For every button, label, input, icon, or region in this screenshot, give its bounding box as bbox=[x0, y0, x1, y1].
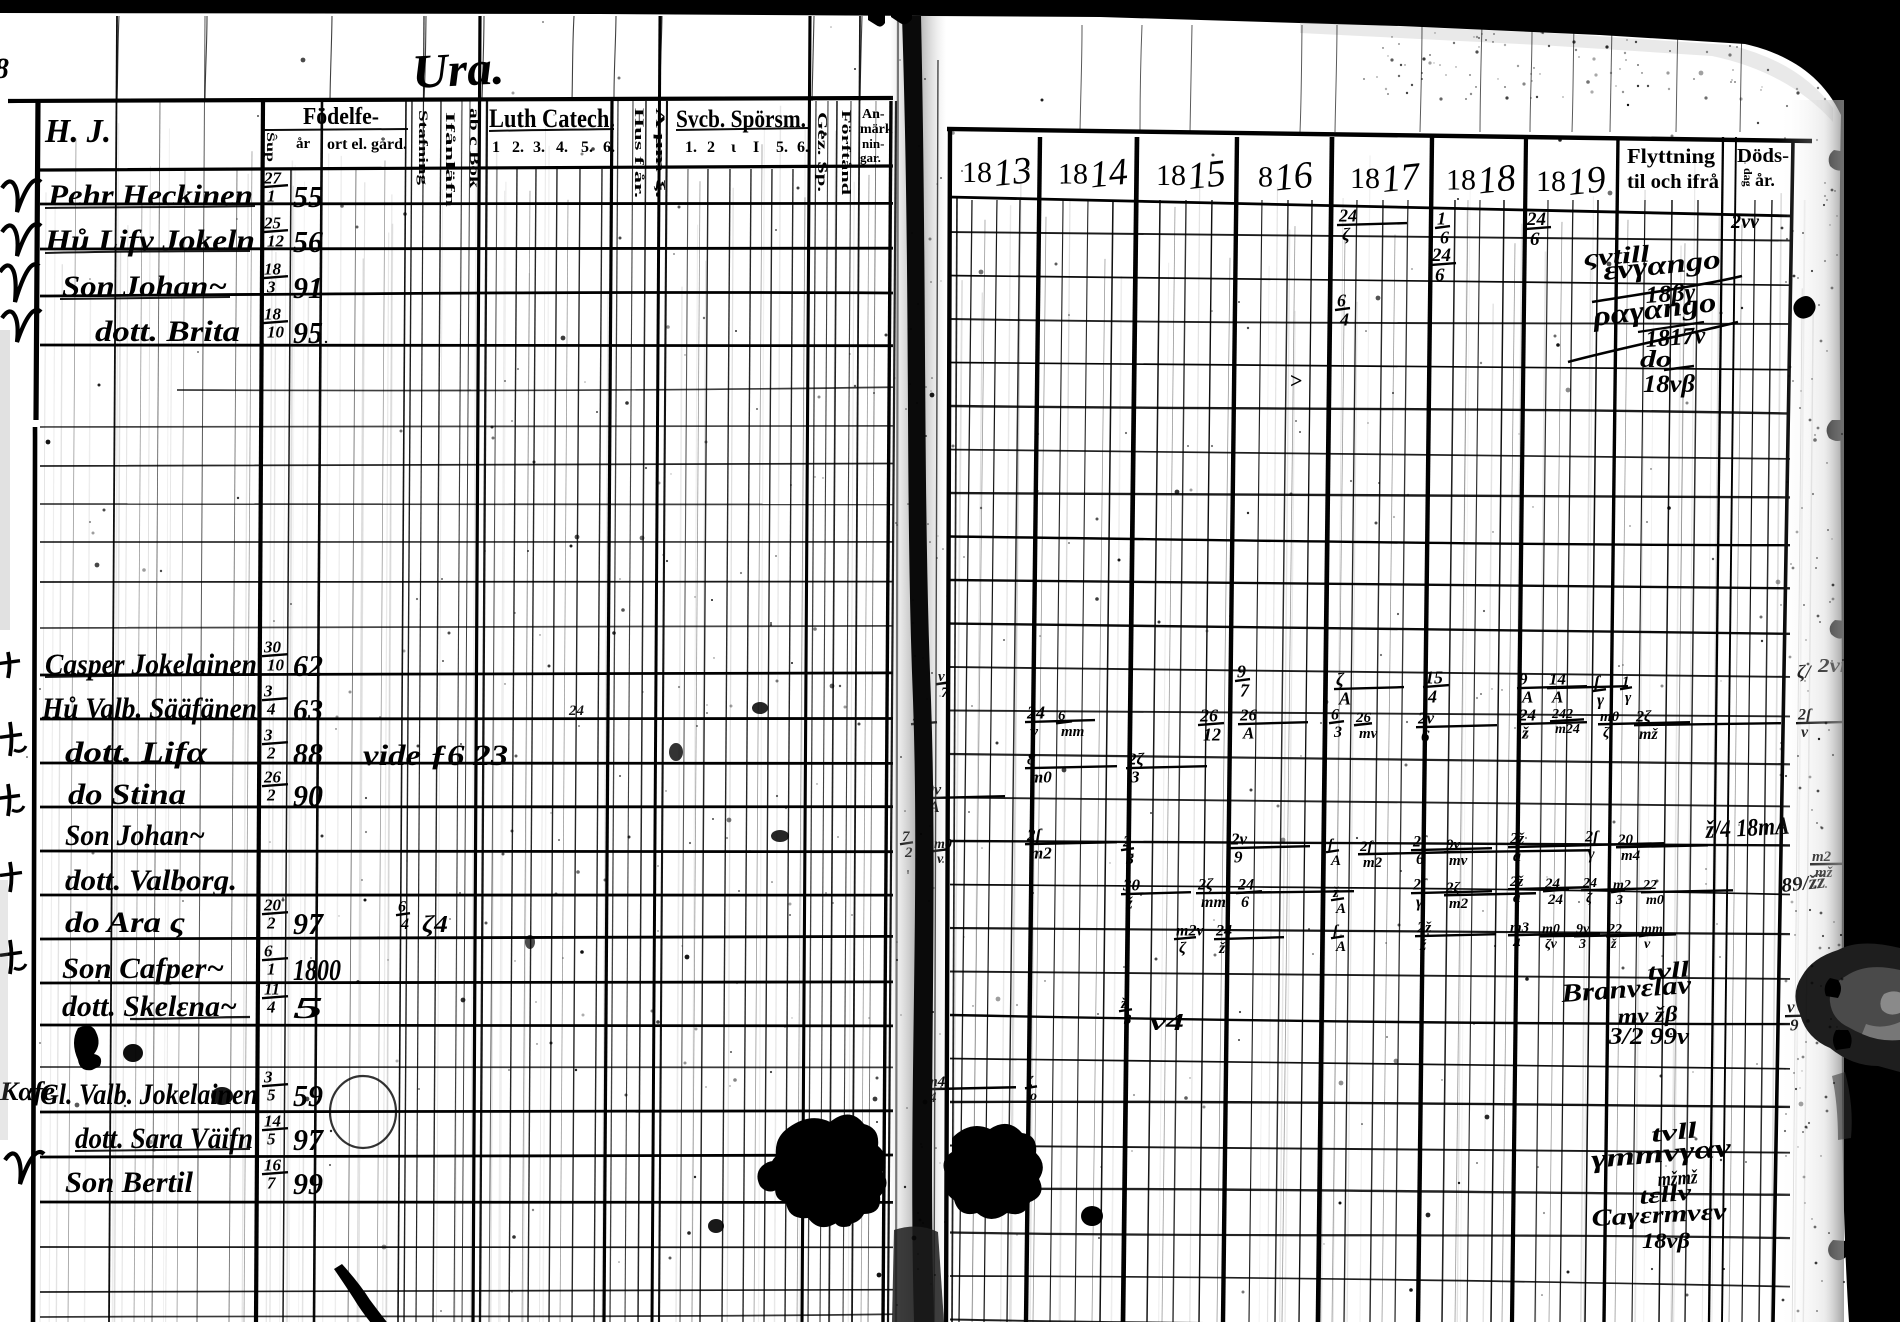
svg-text:ž: ž bbox=[1125, 894, 1133, 913]
svg-text:3: 3 bbox=[1123, 1012, 1132, 1028]
svg-text:8: 8 bbox=[1258, 161, 1273, 194]
svg-text:ζ4: ζ4 bbox=[422, 912, 448, 938]
svg-text:т0: т0 bbox=[1646, 893, 1664, 908]
svg-text:18νβ: 18νβ bbox=[1643, 371, 1695, 398]
svg-text:4: 4 bbox=[1339, 309, 1349, 329]
svg-text:4: 4 bbox=[400, 916, 409, 933]
svg-text:4.: 4. bbox=[556, 139, 568, 156]
svg-text:18: 18 bbox=[1350, 162, 1380, 195]
svg-text:59: 59 bbox=[293, 1078, 323, 1113]
svg-text:4: 4 bbox=[1427, 686, 1437, 706]
svg-text:2ζ: 2ζ bbox=[1445, 880, 1462, 896]
svg-text:til och ifrå: til och ifrå bbox=[1627, 171, 1719, 193]
svg-text:dag: dag bbox=[1741, 168, 1755, 187]
svg-text:ζ: ζ bbox=[1179, 940, 1187, 957]
svg-text:ζ: ζ bbox=[1342, 224, 1351, 244]
svg-text:15: 15 bbox=[1425, 667, 1443, 687]
svg-text:16: 16 bbox=[1273, 154, 1315, 200]
svg-text:Ι: Ι bbox=[753, 139, 759, 156]
svg-text:Son Bertil: Son Bertil bbox=[65, 1166, 194, 1199]
svg-text:т24: т24 bbox=[1555, 722, 1580, 737]
svg-text:18: 18 bbox=[1536, 165, 1566, 198]
svg-text:8: 8 bbox=[0, 52, 9, 85]
svg-text:тν: тν bbox=[1449, 853, 1468, 869]
svg-text:6.: 6. bbox=[797, 139, 809, 156]
svg-text:56: 56 bbox=[293, 224, 323, 259]
svg-text:2ſ: 2ſ bbox=[1359, 839, 1375, 855]
svg-text:62: 62 bbox=[293, 648, 323, 683]
svg-text:2ζ: 2ζ bbox=[1197, 877, 1214, 894]
svg-text:Α μm ξ.: Α μm ξ. bbox=[653, 108, 668, 198]
svg-text:24: 24 bbox=[568, 703, 585, 719]
svg-text:Α: Α bbox=[1521, 688, 1533, 707]
svg-text:Son Johan~: Son Johan~ bbox=[65, 819, 205, 852]
svg-text:dott. Valborg.: dott. Valborg. bbox=[65, 864, 237, 897]
svg-text:år: år bbox=[296, 136, 311, 152]
svg-text:55: 55 bbox=[293, 179, 323, 214]
svg-text:22: 22 bbox=[1607, 922, 1622, 937]
svg-text:2ζ: 2ζ bbox=[1127, 749, 1145, 768]
svg-text:т2: т2 bbox=[1449, 896, 1469, 912]
svg-text:2ſ: 2ſ bbox=[1412, 834, 1428, 851]
svg-text:13: 13 bbox=[992, 149, 1034, 195]
svg-text:2: 2 bbox=[266, 914, 276, 933]
svg-text:97: 97 bbox=[293, 1122, 324, 1157]
svg-text:18: 18 bbox=[1446, 164, 1476, 197]
svg-text:88: 88 bbox=[293, 736, 323, 771]
svg-text:6: 6 bbox=[1416, 851, 1424, 868]
svg-text:ι: ι bbox=[731, 139, 736, 156]
svg-text:т3: т3 bbox=[1510, 920, 1530, 936]
svg-text:gar.: gar. bbox=[860, 150, 881, 165]
svg-text:14: 14 bbox=[1088, 151, 1130, 197]
svg-text:9ν: 9ν bbox=[1576, 922, 1590, 937]
svg-text:Α: Α bbox=[1330, 853, 1341, 869]
svg-text:15: 15 bbox=[1186, 152, 1228, 198]
svg-text:Ifånläfn: Ifånläfn bbox=[443, 112, 458, 209]
svg-text:4: 4 bbox=[1512, 936, 1521, 952]
svg-text:Gez. Sp.: Gez. Sp. bbox=[814, 112, 829, 192]
svg-text:ž: ž bbox=[1610, 937, 1617, 952]
svg-text:7: 7 bbox=[1240, 680, 1250, 700]
svg-text:2ν: 2ν bbox=[1417, 708, 1435, 727]
svg-text:ž: ž bbox=[1419, 937, 1427, 954]
svg-text:Hů Valb. Sääfänen: Hů Valb. Sääfänen bbox=[41, 692, 257, 725]
svg-text:3: 3 bbox=[263, 725, 273, 744]
svg-text:5.: 5. bbox=[776, 139, 788, 156]
svg-text:18: 18 bbox=[1058, 158, 1088, 191]
svg-text:т4: т4 bbox=[1621, 848, 1641, 864]
svg-text:а: а bbox=[1513, 890, 1521, 906]
svg-text:6: 6 bbox=[1435, 265, 1445, 286]
svg-text:1.: 1. bbox=[685, 139, 697, 156]
svg-text:17: 17 bbox=[1380, 155, 1424, 201]
svg-text:тž: тž bbox=[1639, 726, 1658, 743]
svg-text:24: 24 bbox=[1338, 205, 1357, 225]
svg-text:6: 6 bbox=[1241, 894, 1249, 911]
svg-text:Kαfe: Kαfe bbox=[0, 1077, 55, 1106]
svg-text:90: 90 bbox=[293, 778, 323, 813]
svg-text:Ŝup: Ŝup bbox=[264, 132, 278, 162]
svg-text:vide ƒ6 23: vide ƒ6 23 bbox=[363, 739, 508, 772]
svg-text:9ν: 9ν bbox=[1446, 837, 1461, 853]
svg-text:ζν: ζν bbox=[1545, 937, 1558, 952]
svg-text:20: 20 bbox=[1617, 832, 1634, 848]
svg-text:Α: Α bbox=[1242, 724, 1254, 743]
svg-text:ž: ž bbox=[1218, 940, 1226, 957]
svg-text:18: 18 bbox=[1476, 157, 1518, 203]
svg-text:4: 4 bbox=[266, 700, 276, 719]
svg-text:26: 26 bbox=[1199, 705, 1218, 725]
svg-text:märk: märk bbox=[860, 122, 893, 137]
svg-text:т2: т2 bbox=[1363, 855, 1383, 871]
svg-text:24: 24 bbox=[1215, 923, 1232, 940]
svg-text:24: 24 bbox=[1547, 892, 1564, 908]
svg-text:3: 3 bbox=[263, 681, 273, 700]
svg-text:12: 12 bbox=[1203, 724, 1221, 744]
svg-text:ort el. gård.: ort el. gård. bbox=[327, 136, 407, 153]
svg-text:2: 2 bbox=[266, 744, 276, 763]
svg-text:а: а bbox=[1513, 848, 1521, 865]
svg-text:тт: тт bbox=[1201, 894, 1226, 911]
svg-text:т0: т0 bbox=[1600, 709, 1620, 725]
svg-text:19: 19 bbox=[1566, 158, 1608, 204]
svg-text:6.: 6. bbox=[603, 139, 615, 156]
svg-text:3/2 99ν: 3/2 99ν bbox=[1608, 1024, 1690, 1050]
svg-text:3: 3 bbox=[266, 278, 276, 297]
svg-text:3: 3 bbox=[1130, 768, 1140, 787]
svg-text:5: 5 bbox=[293, 990, 323, 1025]
svg-text:2: 2 bbox=[266, 786, 276, 805]
svg-text:>: > bbox=[1290, 368, 1303, 393]
svg-text:9: 9 bbox=[1237, 661, 1246, 681]
svg-text:97: 97 bbox=[293, 906, 324, 941]
svg-text:dott. Lifα: dott. Lifα bbox=[65, 736, 207, 769]
svg-text:тν: тν bbox=[1359, 726, 1378, 742]
svg-text:14: 14 bbox=[1549, 669, 1566, 688]
svg-text:3: 3 bbox=[1333, 724, 1342, 741]
svg-text:2ν: 2ν bbox=[1230, 829, 1248, 848]
svg-text:γ: γ bbox=[1588, 846, 1595, 863]
svg-text:18: 18 bbox=[962, 156, 992, 189]
svg-text:nin-: nin- bbox=[862, 136, 884, 151]
svg-text:Födelfe-: Födelfe- bbox=[303, 104, 379, 130]
svg-text:2ſ: 2ſ bbox=[1584, 829, 1600, 846]
svg-text:1: 1 bbox=[1437, 208, 1446, 228]
svg-text:2ž: 2ž bbox=[1509, 874, 1525, 890]
svg-text:т0: т0 bbox=[1542, 922, 1560, 937]
svg-text:22: 22 bbox=[1642, 878, 1657, 893]
svg-text:Α: Α bbox=[1338, 688, 1351, 708]
svg-text:ž: ž bbox=[1521, 724, 1529, 743]
svg-text:Flyttning: Flyttning bbox=[1627, 144, 1716, 168]
svg-text:12: 12 bbox=[267, 232, 285, 251]
svg-text:An-: An- bbox=[862, 107, 885, 122]
svg-text:А: А bbox=[1551, 688, 1563, 707]
svg-text:2.: 2. bbox=[512, 139, 524, 156]
svg-text:2ž: 2ž bbox=[1416, 920, 1432, 937]
svg-text:18: 18 bbox=[264, 259, 282, 278]
svg-text:9: 9 bbox=[1234, 848, 1243, 867]
svg-text:ο: ο bbox=[1030, 1089, 1037, 1104]
svg-text:γ: γ bbox=[1416, 894, 1423, 911]
svg-text:6: 6 bbox=[1530, 229, 1540, 250]
svg-text:Hus f år.: Hus f år. bbox=[632, 108, 647, 198]
svg-text:18νβ: 18νβ bbox=[1642, 1228, 1691, 1253]
svg-text:2νν: 2νν bbox=[1730, 211, 1760, 233]
svg-text:Förftånd: Förftånd bbox=[839, 110, 854, 196]
svg-text:30: 30 bbox=[263, 637, 282, 656]
svg-text:99: 99 bbox=[293, 1166, 323, 1201]
svg-text:Stafning: Stafning bbox=[416, 110, 431, 186]
svg-text:H. J.: H. J. bbox=[44, 113, 111, 150]
svg-text:14: 14 bbox=[264, 1111, 281, 1130]
svg-text:18: 18 bbox=[1156, 159, 1186, 192]
svg-text:2: 2 bbox=[707, 139, 715, 156]
svg-text:30: 30 bbox=[1122, 875, 1141, 894]
svg-text:γ: γ bbox=[1597, 691, 1605, 710]
svg-text:6: 6 bbox=[1337, 290, 1346, 310]
svg-text:ζ: ζ bbox=[1336, 669, 1345, 689]
svg-text:24: 24 bbox=[1518, 705, 1536, 724]
svg-text:ν4: ν4 bbox=[1150, 1010, 1184, 1036]
svg-text:9: 9 bbox=[1519, 669, 1528, 688]
svg-text:т0: т0 bbox=[1030, 768, 1052, 787]
svg-text:63: 63 bbox=[293, 692, 323, 727]
svg-text:6: 6 bbox=[1421, 727, 1430, 746]
svg-text:3.: 3. bbox=[533, 139, 545, 156]
svg-text:γ: γ bbox=[1625, 690, 1632, 706]
svg-text:26: 26 bbox=[1239, 705, 1258, 724]
svg-text:1: 1 bbox=[267, 187, 276, 206]
svg-text:2ž: 2ž bbox=[1509, 831, 1525, 848]
svg-text:2ſ: 2ſ bbox=[1412, 877, 1428, 894]
svg-text:3: 3 bbox=[1615, 893, 1623, 908]
svg-text:år.: år. bbox=[1755, 170, 1775, 190]
svg-text:18: 18 bbox=[264, 304, 282, 323]
